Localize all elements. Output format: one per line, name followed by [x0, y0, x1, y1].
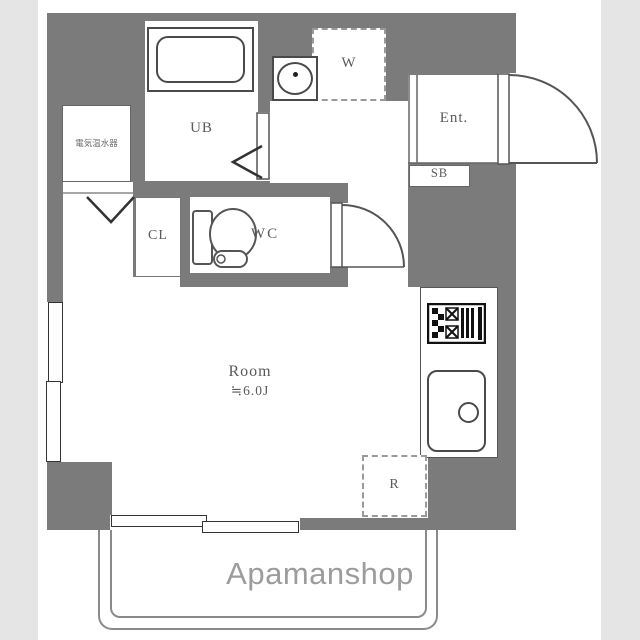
room-floor-b	[133, 277, 180, 518]
label-wc: WC	[195, 226, 335, 243]
stove-icon	[427, 303, 486, 344]
unit-bath-door-gap	[256, 112, 270, 181]
left-edge-band	[0, 0, 38, 640]
left-window-upper	[48, 302, 63, 383]
left-window-lower	[46, 381, 61, 462]
label-room: Room ≒6.0J	[186, 362, 314, 400]
label-refrigerator: R	[362, 477, 427, 493]
bathtub-icon	[147, 27, 254, 92]
room-floor-c	[180, 287, 348, 518]
label-water-heater: 電気温水器	[62, 137, 131, 149]
label-closet: CL	[135, 228, 181, 244]
faucet-icon	[458, 402, 479, 423]
washroom-hall	[270, 101, 408, 183]
room-name: Room	[186, 362, 314, 381]
bottom-window-left	[111, 515, 207, 527]
label-shoe-box: SB	[409, 166, 470, 181]
corridor-left	[63, 182, 133, 462]
label-unit-bath: UB	[145, 120, 258, 137]
room-size: ≒6.0J	[186, 381, 314, 400]
watermark-apamanshop: Apamanshop	[120, 556, 520, 592]
right-edge-band	[601, 0, 640, 640]
entrance-door-zone	[498, 73, 601, 164]
room-floor-a	[112, 462, 133, 518]
label-entrance: Ent.	[408, 110, 500, 127]
floorplan-image: 電気温水器 UB W Ent. SB CL WC Room ≒6.0J R Ap…	[0, 0, 640, 640]
label-washer: W	[312, 55, 386, 72]
